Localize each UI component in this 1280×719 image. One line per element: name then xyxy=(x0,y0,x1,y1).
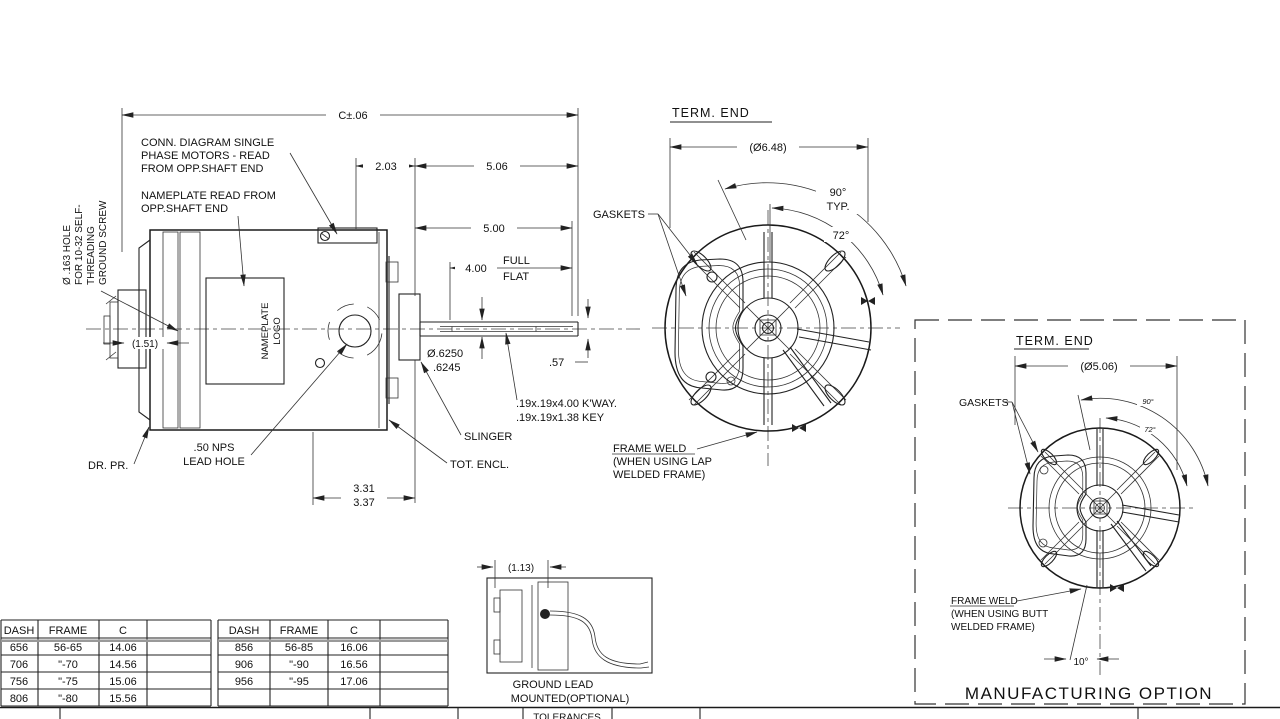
lead-hole-label-line2: LEAD HOLE xyxy=(183,456,245,468)
angle-72-label: 72° xyxy=(833,230,850,242)
dim-151: (1.51) xyxy=(132,339,158,350)
dim-dia-506: (Ø5.06) xyxy=(1080,361,1117,373)
lead-hole-label-line1: .50 NPS xyxy=(194,442,235,454)
table-cell: 14.06 xyxy=(109,642,137,654)
dim-dia-648: (Ø6.48) xyxy=(749,142,786,154)
table-cell: 16.56 xyxy=(340,659,368,671)
ground-lead-inset: (1.13) GROUND LEAD MOUNTED(OPTIONAL) xyxy=(477,560,652,705)
mfg-angle-90-label: 90° xyxy=(1142,397,1153,406)
dim-500: 5.00 xyxy=(483,223,504,235)
slinger-stack xyxy=(399,294,420,360)
inset-fins xyxy=(538,582,568,670)
left-table-header-dash: DASH xyxy=(4,625,35,637)
gaskets-label: GASKETS xyxy=(593,209,645,221)
mfg-option-caption: MANUFACTURING OPTION xyxy=(965,684,1213,703)
right-table-rows: 856 56-85 16.06 906 "-90 16.56 956 "-95 … xyxy=(235,642,368,688)
table-cell: 806 xyxy=(10,693,28,705)
table-cell: 14.56 xyxy=(109,659,137,671)
table-cell: "-75 xyxy=(58,676,78,688)
body-screw xyxy=(316,359,325,368)
left-table-header-frame: FRAME xyxy=(49,625,88,637)
dim-331: 3.31 xyxy=(353,483,374,495)
term-end-view: TERM. END xyxy=(593,106,906,481)
table-cell: 706 xyxy=(10,659,28,671)
dashed-border xyxy=(915,320,1245,704)
dim-overall-c: C±.06 xyxy=(338,110,367,122)
mfg-gasket xyxy=(1033,455,1086,556)
side-view: C±.06 2.03 5.06 5.00 4.00 FULL FLAT Ø.62… xyxy=(62,107,640,509)
table-cell: 16.06 xyxy=(340,642,368,654)
ground-lead-caption-line1: GROUND LEAD xyxy=(513,679,594,691)
table-cell: "-70 xyxy=(58,659,78,671)
ground-screw-line1: Ø .163 HOLE xyxy=(62,225,73,285)
tot-encl-label: TOT. ENCL. xyxy=(450,459,509,471)
mfg-gaskets-label: GASKETS xyxy=(959,397,1009,409)
mfg-angle-72-label: 72° xyxy=(1144,425,1155,434)
dim-337: 3.37 xyxy=(353,497,374,509)
nameplate-note-line2: OPP.SHAFT END xyxy=(141,203,228,215)
table-cell: 756 xyxy=(10,676,28,688)
right-table-header-frame: FRAME xyxy=(280,625,319,637)
dim-400: 4.00 xyxy=(465,263,486,275)
right-table-header-c: C xyxy=(350,625,358,637)
ground-screw-note: Ø .163 HOLE FOR 10-32 SELF- THREADING GR… xyxy=(62,200,109,285)
frame-weld-butt-line3: WELDED FRAME) xyxy=(951,622,1035,633)
frame-weld-butt-line2: (WHEN USING BUTT xyxy=(951,609,1048,620)
nameplate-note-line1: NAMEPLATE READ FROM xyxy=(141,190,276,202)
mfg-weld-symbol xyxy=(1110,584,1124,592)
stator-fins xyxy=(180,232,200,428)
slinger-label: SLINGER xyxy=(464,431,512,443)
table-cell: 15.06 xyxy=(109,676,137,688)
table-cell: 906 xyxy=(235,659,253,671)
ground-screw-line4: GROUND SCREW xyxy=(98,200,109,285)
opp-shaft-end-hub xyxy=(104,240,150,420)
keyway-note-line2: .19x.19x1.38 KEY xyxy=(516,412,605,424)
typ-label: TYP. xyxy=(826,201,849,213)
lead-hole-circle xyxy=(339,315,371,347)
table-cell: "-90 xyxy=(289,659,309,671)
full-label: FULL xyxy=(503,255,530,267)
table-cell: 56-65 xyxy=(54,642,82,654)
frame-weld-lap-line2: (WHEN USING LAP xyxy=(613,456,712,468)
keyway-note-line1: .19x.19x4.00 K'WAY. xyxy=(516,398,617,410)
mfg-term-end-title: TERM. END xyxy=(1016,334,1094,348)
table-cell: 856 xyxy=(235,642,253,654)
angle-90-label: 90° xyxy=(830,187,847,199)
spokes xyxy=(764,232,871,425)
table-cell: "-95 xyxy=(289,676,309,688)
table-cell: 956 xyxy=(235,676,253,688)
ground-screw-line2: FOR 10-32 SELF- xyxy=(74,204,85,285)
conn-note-line1: CONN. DIAGRAM SINGLE xyxy=(141,137,274,149)
frame-weld-butt-line1: FRAME WELD xyxy=(951,596,1018,607)
nameplate-note: NAMEPLATE READ FROM OPP.SHAFT END xyxy=(141,190,276,215)
left-table-rows: 656 56-65 14.06 706 "-70 14.56 756 "-75 … xyxy=(10,642,137,705)
table-cell: 17.06 xyxy=(340,676,368,688)
dim-203: 2.03 xyxy=(375,161,396,173)
ground-lead-wire xyxy=(550,611,649,668)
dim-57: .57 xyxy=(549,357,564,369)
inset-endbell xyxy=(500,590,522,662)
frame-weld-lap-line3: WELDED FRAME) xyxy=(613,469,705,481)
conn-note-line3: FROM OPP.SHAFT END xyxy=(141,163,264,175)
table-cell: 56-85 xyxy=(285,642,313,654)
right-table-header-dash: DASH xyxy=(229,625,260,637)
conn-diagram-note: CONN. DIAGRAM SINGLE PHASE MOTORS - READ… xyxy=(141,137,274,175)
dash-frame-tables: DASH FRAME C 656 56-65 14.06 706 "-70 14… xyxy=(1,620,448,706)
ground-screw-dot xyxy=(540,609,550,619)
flat-label: FLAT xyxy=(503,271,529,283)
term-end-title: TERM. END xyxy=(672,106,750,120)
dim-113: (1.13) xyxy=(508,563,534,574)
motor-engineering-drawing: C±.06 2.03 5.06 5.00 4.00 FULL FLAT Ø.62… xyxy=(0,0,1280,719)
dr-pr-label: DR. PR. xyxy=(88,460,128,472)
shaft-dia-hi: Ø.6250 xyxy=(427,348,463,360)
table-cell: "-80 xyxy=(58,693,78,705)
shaft-dia-lo: .6245 xyxy=(433,362,461,374)
nameplate-logo-text: NAMEPLATE xyxy=(260,303,271,360)
dim-506: 5.06 xyxy=(486,161,507,173)
table-cell: 15.56 xyxy=(109,693,137,705)
title-block: TOLERANCES xyxy=(0,707,1280,719)
ground-lead-caption-line2: MOUNTED(OPTIONAL) xyxy=(511,693,630,705)
left-table-header-c: C xyxy=(119,625,127,637)
angle-10-label: 10° xyxy=(1073,657,1088,668)
frame-weld-lap-line1: FRAME WELD xyxy=(613,443,686,455)
nameplate-logo-text2: LOGO xyxy=(272,317,283,344)
tolerances-label: TOLERANCES xyxy=(533,713,601,719)
manufacturing-option-inset: TERM. END xyxy=(915,320,1245,704)
conn-note-line2: PHASE MOTORS - READ xyxy=(141,150,270,162)
table-cell: 656 xyxy=(10,642,28,654)
ground-screw-line3: THREADING xyxy=(86,226,97,285)
